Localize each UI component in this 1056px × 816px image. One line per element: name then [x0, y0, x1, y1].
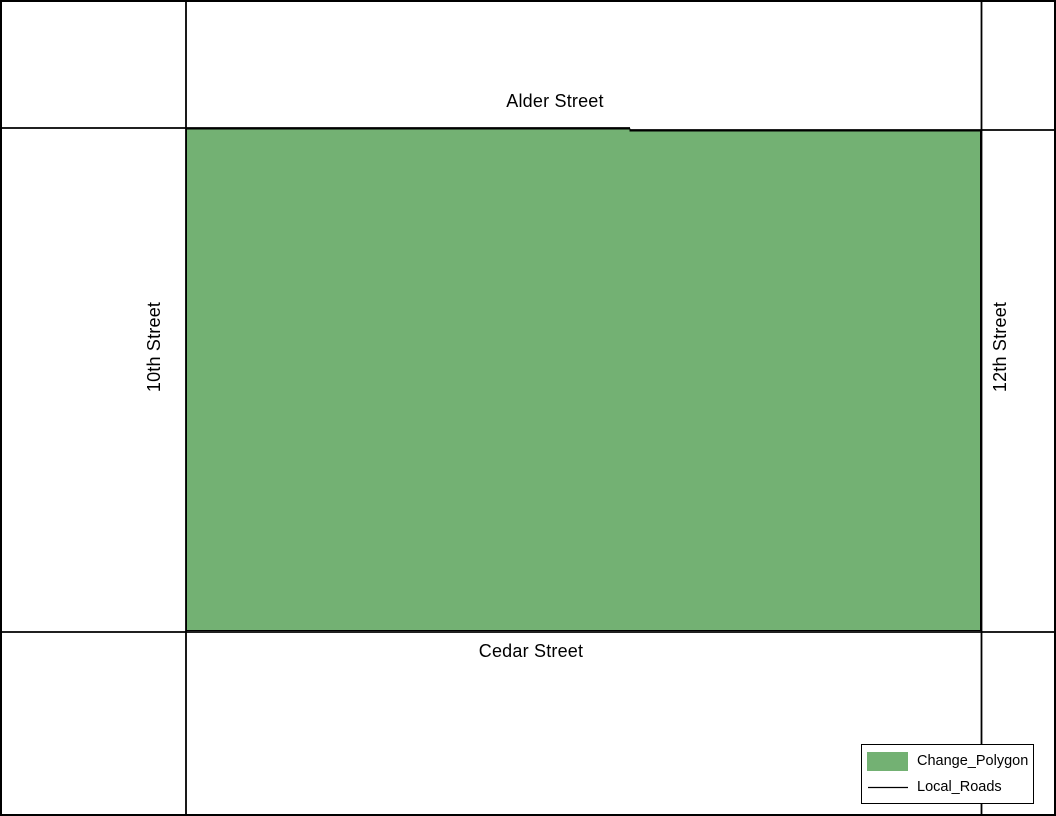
- street-label-12th: 12th Street: [990, 302, 1010, 392]
- legend-item-change-polygon: Change_Polygon: [867, 751, 1033, 771]
- street-label-alder: Alder Street: [506, 91, 603, 111]
- legend: Change_Polygon Local_Roads: [861, 744, 1034, 804]
- polygon-swatch-rect: [867, 752, 908, 771]
- local-roads-line-swatch-icon: [867, 777, 909, 797]
- map-canvas[interactable]: Alder Street Cedar Street 10th Street 12…: [0, 0, 1056, 816]
- legend-label-local-roads: Local_Roads: [917, 777, 1002, 797]
- change-polygon-feature[interactable]: [187, 129, 981, 631]
- legend-label-change-polygon: Change_Polygon: [917, 751, 1028, 771]
- change-polygon-swatch-icon: [867, 751, 909, 771]
- street-label-cedar: Cedar Street: [479, 641, 583, 661]
- street-label-10th: 10th Street: [144, 302, 164, 392]
- map-graphic: Alder Street Cedar Street 10th Street 12…: [0, 0, 1056, 816]
- legend-item-local-roads: Local_Roads: [867, 777, 1033, 797]
